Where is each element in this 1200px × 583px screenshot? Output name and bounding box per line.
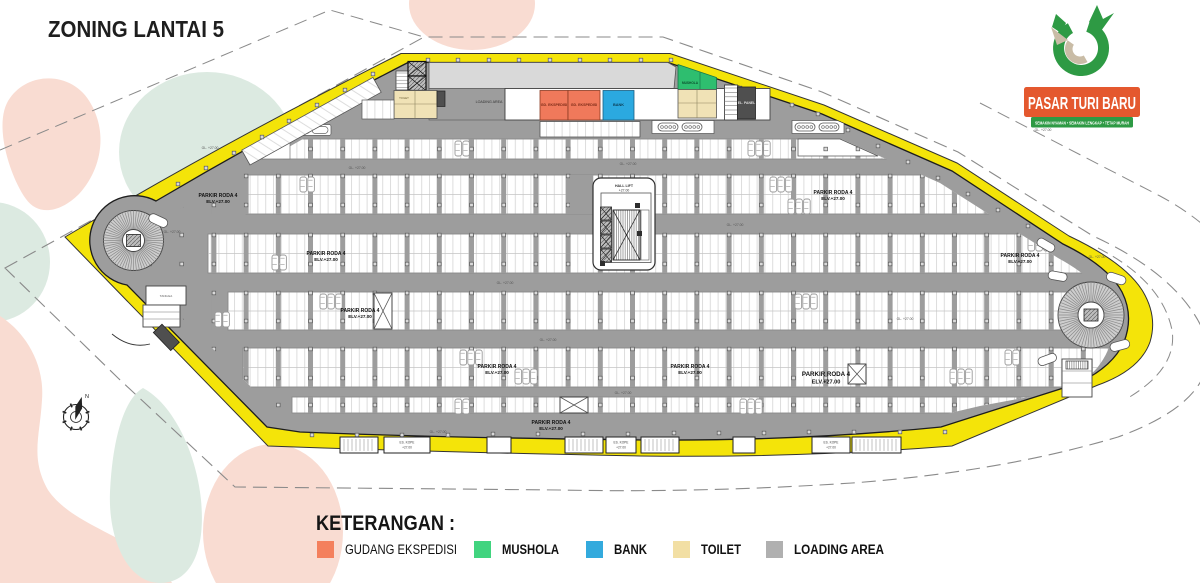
svg-text:ELV.+27.00: ELV.+27.00	[678, 370, 702, 375]
svg-text:PASAR TURI BARU: PASAR TURI BARU	[1028, 93, 1136, 113]
svg-text:BANK: BANK	[613, 103, 624, 107]
svg-text:GL. +27.00: GL. +27.00	[164, 230, 181, 234]
svg-text:BANK: BANK	[614, 542, 647, 557]
svg-text:ELV.+27.00: ELV.+27.00	[314, 257, 338, 262]
svg-text:MUSHOLA: MUSHOLA	[682, 81, 699, 85]
svg-text:GL. +27.00: GL. +27.00	[202, 146, 219, 150]
svg-text:GL. +27.00: GL. +27.00	[620, 162, 637, 166]
svg-text:GD. EKSPEDISI: GD. EKSPEDISI	[571, 103, 598, 107]
svg-text:KETERANGAN :: KETERANGAN :	[316, 512, 455, 535]
svg-text:ES. KOPE: ES. KOPE	[824, 441, 839, 445]
svg-text:GL. +27.00: GL. +27.00	[349, 166, 366, 170]
svg-text:+27.00: +27.00	[826, 446, 836, 450]
svg-text:ELV.+27.00: ELV.+27.00	[485, 370, 509, 375]
svg-text:ZONING LANTAI 5: ZONING LANTAI 5	[48, 16, 224, 42]
svg-text:GL. +27.00: GL. +27.00	[615, 391, 632, 395]
svg-text:TOILET: TOILET	[399, 96, 409, 100]
svg-text:LOADING AREA: LOADING AREA	[476, 100, 503, 104]
svg-text:ELV.+27.00: ELV.+27.00	[812, 380, 841, 386]
svg-text:TANGGA: TANGGA	[160, 294, 172, 298]
svg-text:SEMAKIN NYAMAN • SEMAKIN LENGK: SEMAKIN NYAMAN • SEMAKIN LENGKAP • TETAP…	[1035, 121, 1129, 126]
svg-text:+27.00: +27.00	[616, 446, 626, 450]
svg-text:EL. PANEL: EL. PANEL	[738, 101, 755, 105]
svg-text:GL. +27.00: GL. +27.00	[1089, 255, 1106, 259]
svg-text:GL. +27.00: GL. +27.00	[1035, 128, 1052, 132]
svg-text:ELV.+27.00: ELV.+27.00	[1008, 259, 1032, 264]
svg-text:HALL LIFT: HALL LIFT	[615, 184, 634, 188]
svg-text:MUSHOLA: MUSHOLA	[502, 542, 559, 557]
svg-text:ELV.+27.00: ELV.+27.00	[539, 426, 563, 431]
svg-text:PARKIR RODA 4: PARKIR RODA 4	[802, 371, 851, 378]
svg-text:GL. +27.00: GL. +27.00	[430, 430, 447, 434]
svg-text:GD. EKSPEDISI: GD. EKSPEDISI	[541, 103, 568, 107]
svg-text:LOADING AREA: LOADING AREA	[794, 542, 884, 557]
svg-text:ES. KOPE: ES. KOPE	[400, 441, 415, 445]
svg-text:N: N	[85, 394, 89, 400]
svg-text:ES. KOPE: ES. KOPE	[614, 441, 629, 445]
svg-text:GL. +27.00: GL. +27.00	[540, 338, 557, 342]
svg-text:+27.00: +27.00	[619, 189, 630, 193]
svg-text:TOILET: TOILET	[701, 542, 742, 557]
svg-text:GL. +27.00: GL. +27.00	[897, 317, 914, 321]
svg-text:ELV.+27.00: ELV.+27.00	[348, 314, 372, 319]
svg-text:+27.00: +27.00	[402, 446, 412, 450]
svg-text:GL. +27.00: GL. +27.00	[727, 223, 744, 227]
svg-text:GUDANG EKSPEDISI: GUDANG EKSPEDISI	[345, 542, 457, 557]
svg-text:GL. +27.00: GL. +27.00	[497, 281, 514, 285]
svg-text:ELV.+27.00: ELV.+27.00	[206, 199, 230, 204]
svg-text:ELV.+27.00: ELV.+27.00	[821, 196, 845, 201]
